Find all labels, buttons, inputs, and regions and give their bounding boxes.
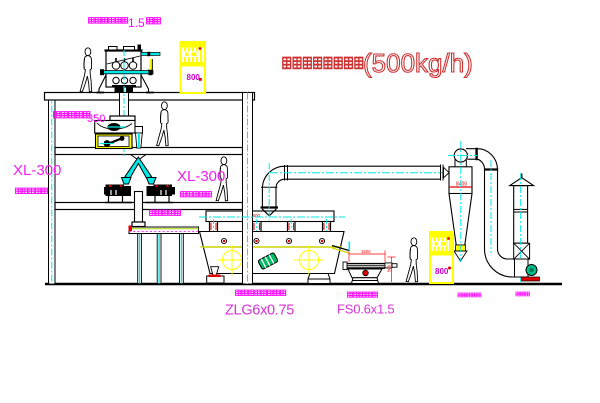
svg-text:1.5: 1.5 xyxy=(128,16,145,30)
svg-text:XL-300: XL-300 xyxy=(13,162,61,179)
svg-text:800: 800 xyxy=(187,73,201,82)
svg-text:350: 350 xyxy=(87,113,105,125)
svg-text:500: 500 xyxy=(387,264,392,272)
svg-text:XL-300: XL-300 xyxy=(177,168,225,185)
svg-text:(500kg/h): (500kg/h) xyxy=(363,48,473,78)
svg-text:8400: 8400 xyxy=(456,182,467,188)
svg-text:FS0.6x1.5: FS0.6x1.5 xyxy=(337,302,394,317)
svg-text:1500: 1500 xyxy=(361,249,371,254)
svg-text:800: 800 xyxy=(435,267,449,276)
svg-text:ZLG6x0.75: ZLG6x0.75 xyxy=(225,303,294,319)
